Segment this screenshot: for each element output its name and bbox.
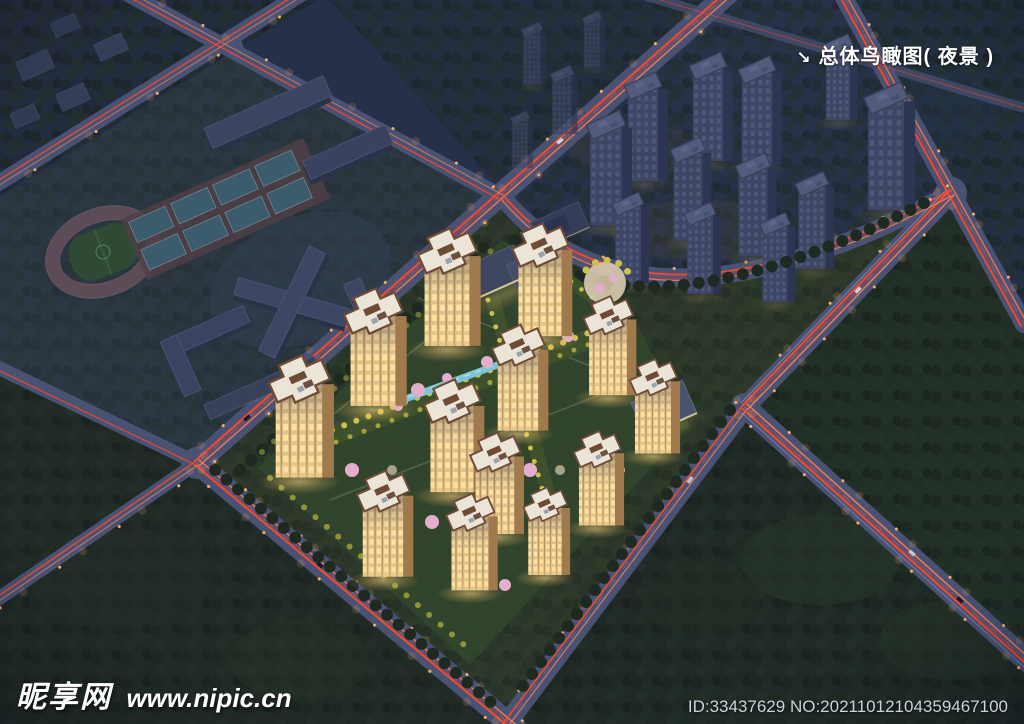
rendering-canvas [0,0,1024,724]
vignette [0,0,1024,724]
page-title: ↘总体鸟瞰图( 夜景 ) [796,40,994,69]
watermark-site-name: 昵享网 [16,681,112,714]
arrow-icon: ↘ [796,48,811,67]
page-title-label: 总体鸟瞰图( 夜景 ) [819,46,994,68]
aerial-night-rendering: ↘总体鸟瞰图( 夜景 ) 昵享网 www.nipic.cn ID:3343762… [0,0,1024,724]
watermark: 昵享网 www.nipic.cn [16,672,292,716]
watermark-site-url: www.nipic.cn [126,683,291,713]
image-id-label: ID:33437629 NO:20211012104359467100 [688,697,1008,717]
